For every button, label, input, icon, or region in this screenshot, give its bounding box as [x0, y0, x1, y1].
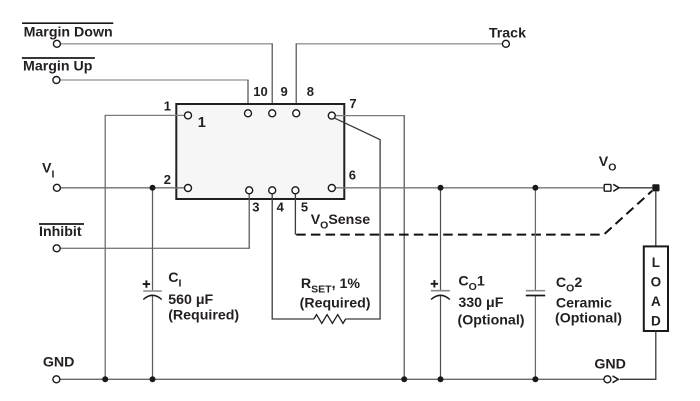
svg-text:(Required): (Required): [168, 308, 239, 324]
svg-text:Ceramic: Ceramic: [556, 295, 612, 311]
svg-text:8: 8: [307, 84, 314, 99]
svg-text:2: 2: [164, 172, 171, 187]
svg-text:Margin Down: Margin Down: [24, 25, 113, 41]
svg-text:GND: GND: [43, 355, 75, 371]
svg-text:10: 10: [253, 84, 267, 99]
svg-text:D: D: [651, 313, 661, 328]
svg-text:(Required): (Required): [300, 296, 371, 312]
svg-text:6: 6: [349, 168, 356, 183]
svg-text:9: 9: [281, 84, 288, 99]
svg-text:5: 5: [301, 200, 308, 215]
svg-text:330 μF: 330 μF: [458, 295, 503, 311]
svg-text:560 μF: 560 μF: [168, 292, 213, 308]
svg-text:Track: Track: [489, 25, 526, 41]
svg-text:4: 4: [277, 200, 285, 215]
svg-text:O: O: [651, 274, 662, 289]
svg-text:3: 3: [252, 200, 259, 215]
svg-text:Inhibit: Inhibit: [39, 224, 82, 240]
svg-text:A: A: [651, 294, 661, 309]
svg-text:(Optional): (Optional): [458, 313, 525, 329]
svg-text:1: 1: [198, 115, 206, 131]
svg-text:1: 1: [164, 99, 171, 114]
svg-text:7: 7: [349, 96, 356, 111]
svg-text:GND: GND: [594, 357, 626, 373]
svg-text:Margin Up: Margin Up: [23, 58, 93, 74]
svg-text:L: L: [652, 255, 660, 270]
svg-text:(Optional): (Optional): [555, 311, 622, 327]
